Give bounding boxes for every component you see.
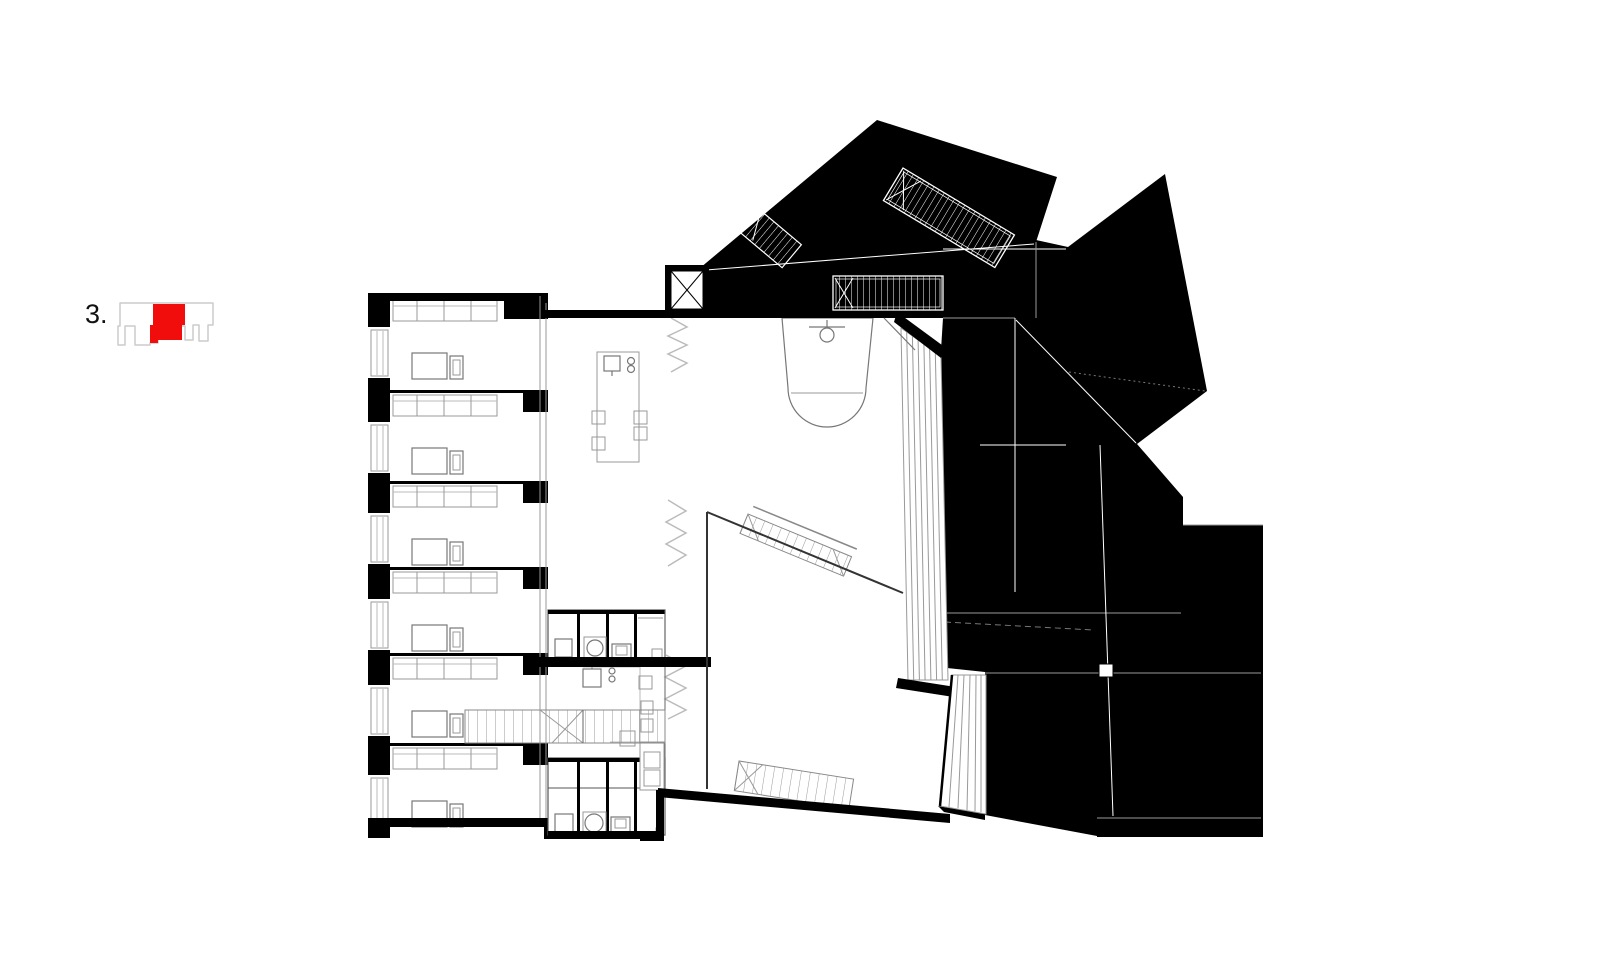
bedroom-module [368, 390, 548, 485]
stair-corridor [465, 710, 665, 743]
elevator-shaft [665, 265, 709, 315]
void-break-symbol [668, 318, 687, 372]
roof-mass-band [1097, 818, 1183, 837]
sink [583, 669, 601, 687]
bathroom-row-upper [548, 610, 665, 663]
bathtub [782, 318, 873, 427]
key-plan-highlight [150, 304, 185, 343]
void-break-symbol [666, 500, 686, 566]
bedroom-module [368, 567, 548, 662]
roof-masses [665, 120, 1263, 837]
floor-number-label: 3. [85, 299, 108, 329]
key-plan: 3. [85, 299, 213, 345]
floor-plan-drawing: 3. [0, 0, 1600, 977]
roof-mass-east [1183, 525, 1263, 837]
apartment-divider-wall [535, 657, 711, 667]
bathroom-south-wall [548, 831, 660, 839]
wing-bottom-wall [368, 818, 548, 827]
burner [609, 668, 615, 674]
kitchen-island [592, 352, 647, 462]
terrace-north-wall [707, 512, 903, 593]
roof-hatch [1099, 664, 1113, 677]
skylight [833, 276, 943, 310]
floor-plan-sheet: 3. [0, 0, 1600, 977]
wing-top-corner-wall [504, 294, 548, 319]
burner [609, 676, 615, 682]
chair [639, 676, 652, 689]
bedroom-wing [368, 293, 550, 839]
bedroom-module [368, 481, 548, 576]
